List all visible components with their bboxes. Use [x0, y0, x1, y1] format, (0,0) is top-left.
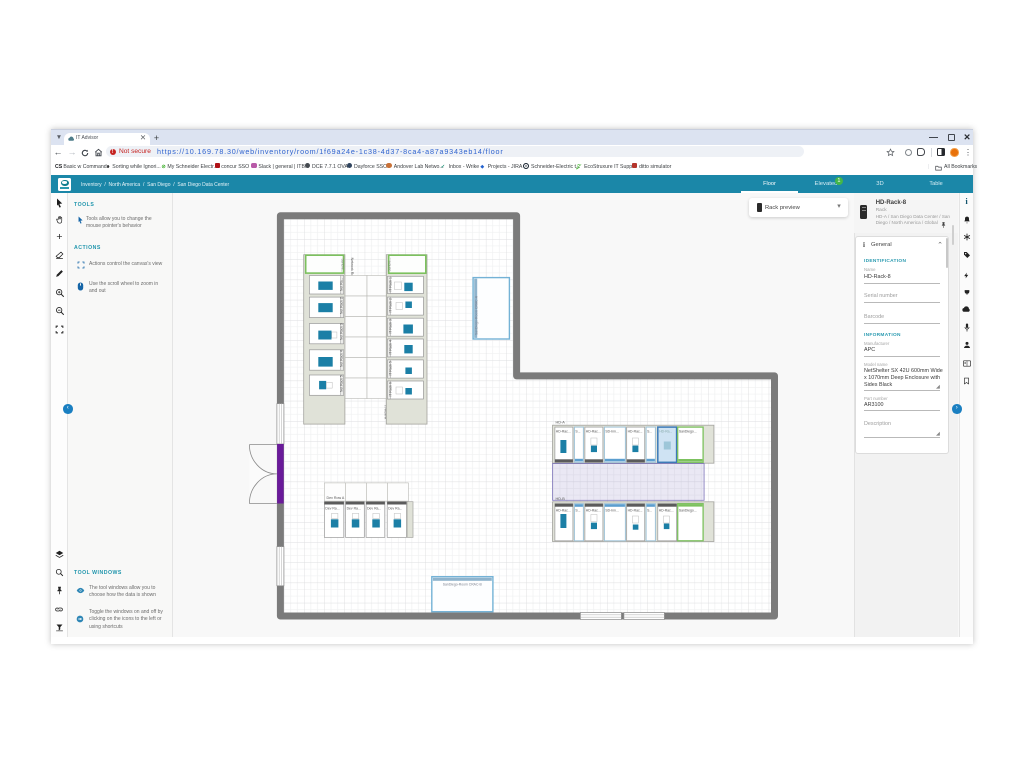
svg-text:Dev Ra...: Dev Ra...: [346, 507, 360, 511]
svg-text:IT Rack 1: IT Rack 1: [388, 277, 392, 292]
svg-text:SanDiego...: SanDiego...: [678, 509, 696, 513]
svg-text:SanDiego-Room CRAC-A: SanDiego-Room CRAC-A: [474, 295, 478, 335]
svg-text:Net Rack 2: Net Rack 2: [339, 297, 343, 314]
svg-text:HD-Ra...: HD-Ra...: [659, 430, 672, 434]
svg-text:SanDie...: SanDie...: [340, 259, 344, 273]
svg-text:SanDiego...: SanDiego...: [678, 430, 696, 434]
svg-text:SanDiego-Room CRAC-B: SanDiego-Room CRAC-B: [442, 583, 482, 587]
svg-text:Net Rack 3: Net Rack 3: [339, 323, 343, 340]
svg-text:Dev Ra...: Dev Ra...: [388, 507, 402, 511]
svg-text:HD-Rac...: HD-Rac...: [627, 430, 642, 434]
svg-text:Net Ra...: Net Ra...: [339, 278, 343, 291]
svg-text:HD-B: HD-B: [555, 497, 565, 501]
svg-text:HD-Rac...: HD-Rac...: [585, 430, 600, 434]
svg-text:S...: S...: [575, 430, 580, 434]
svg-text:HD-Rac...: HD-Rac...: [627, 509, 642, 513]
svg-text:IT Rack 4: IT Rack 4: [388, 340, 392, 355]
svg-text:S...: S...: [647, 430, 652, 434]
svg-text:Net Rack 4: Net Rack 4: [339, 350, 343, 367]
svg-text:IT Rack 3: IT Rack 3: [388, 319, 392, 334]
svg-text:Net Rack 5: Net Rack 5: [339, 375, 343, 392]
svg-text:HD-Rac...: HD-Rac...: [555, 430, 570, 434]
svg-text:HD-A: HD-A: [555, 421, 565, 425]
svg-text:HD-Rac...: HD-Rac...: [658, 509, 673, 513]
svg-text:IT Rack 6: IT Rack 6: [388, 382, 392, 397]
svg-text:SD-Inn...: SD-Inn...: [605, 509, 618, 513]
svg-text:IT Rack 5: IT Rack 5: [388, 361, 392, 376]
svg-text:S...: S...: [575, 509, 580, 513]
svg-text:IT Rack 2: IT Rack 2: [388, 298, 392, 313]
svg-text:HD-Rac...: HD-Rac...: [585, 509, 600, 513]
svg-text:Dev Row A: Dev Row A: [326, 496, 344, 500]
svg-text:S...: S...: [647, 509, 652, 513]
svg-text:HD-Rac...: HD-Rac...: [555, 509, 570, 513]
svg-text:Dev Ra...: Dev Ra...: [325, 507, 339, 511]
svg-text:SD-Inn...: SD-Inn...: [605, 430, 618, 434]
svg-text:Dev Ra...: Dev Ra...: [367, 507, 381, 511]
svg-text:SanDie...: SanDie...: [387, 257, 391, 271]
